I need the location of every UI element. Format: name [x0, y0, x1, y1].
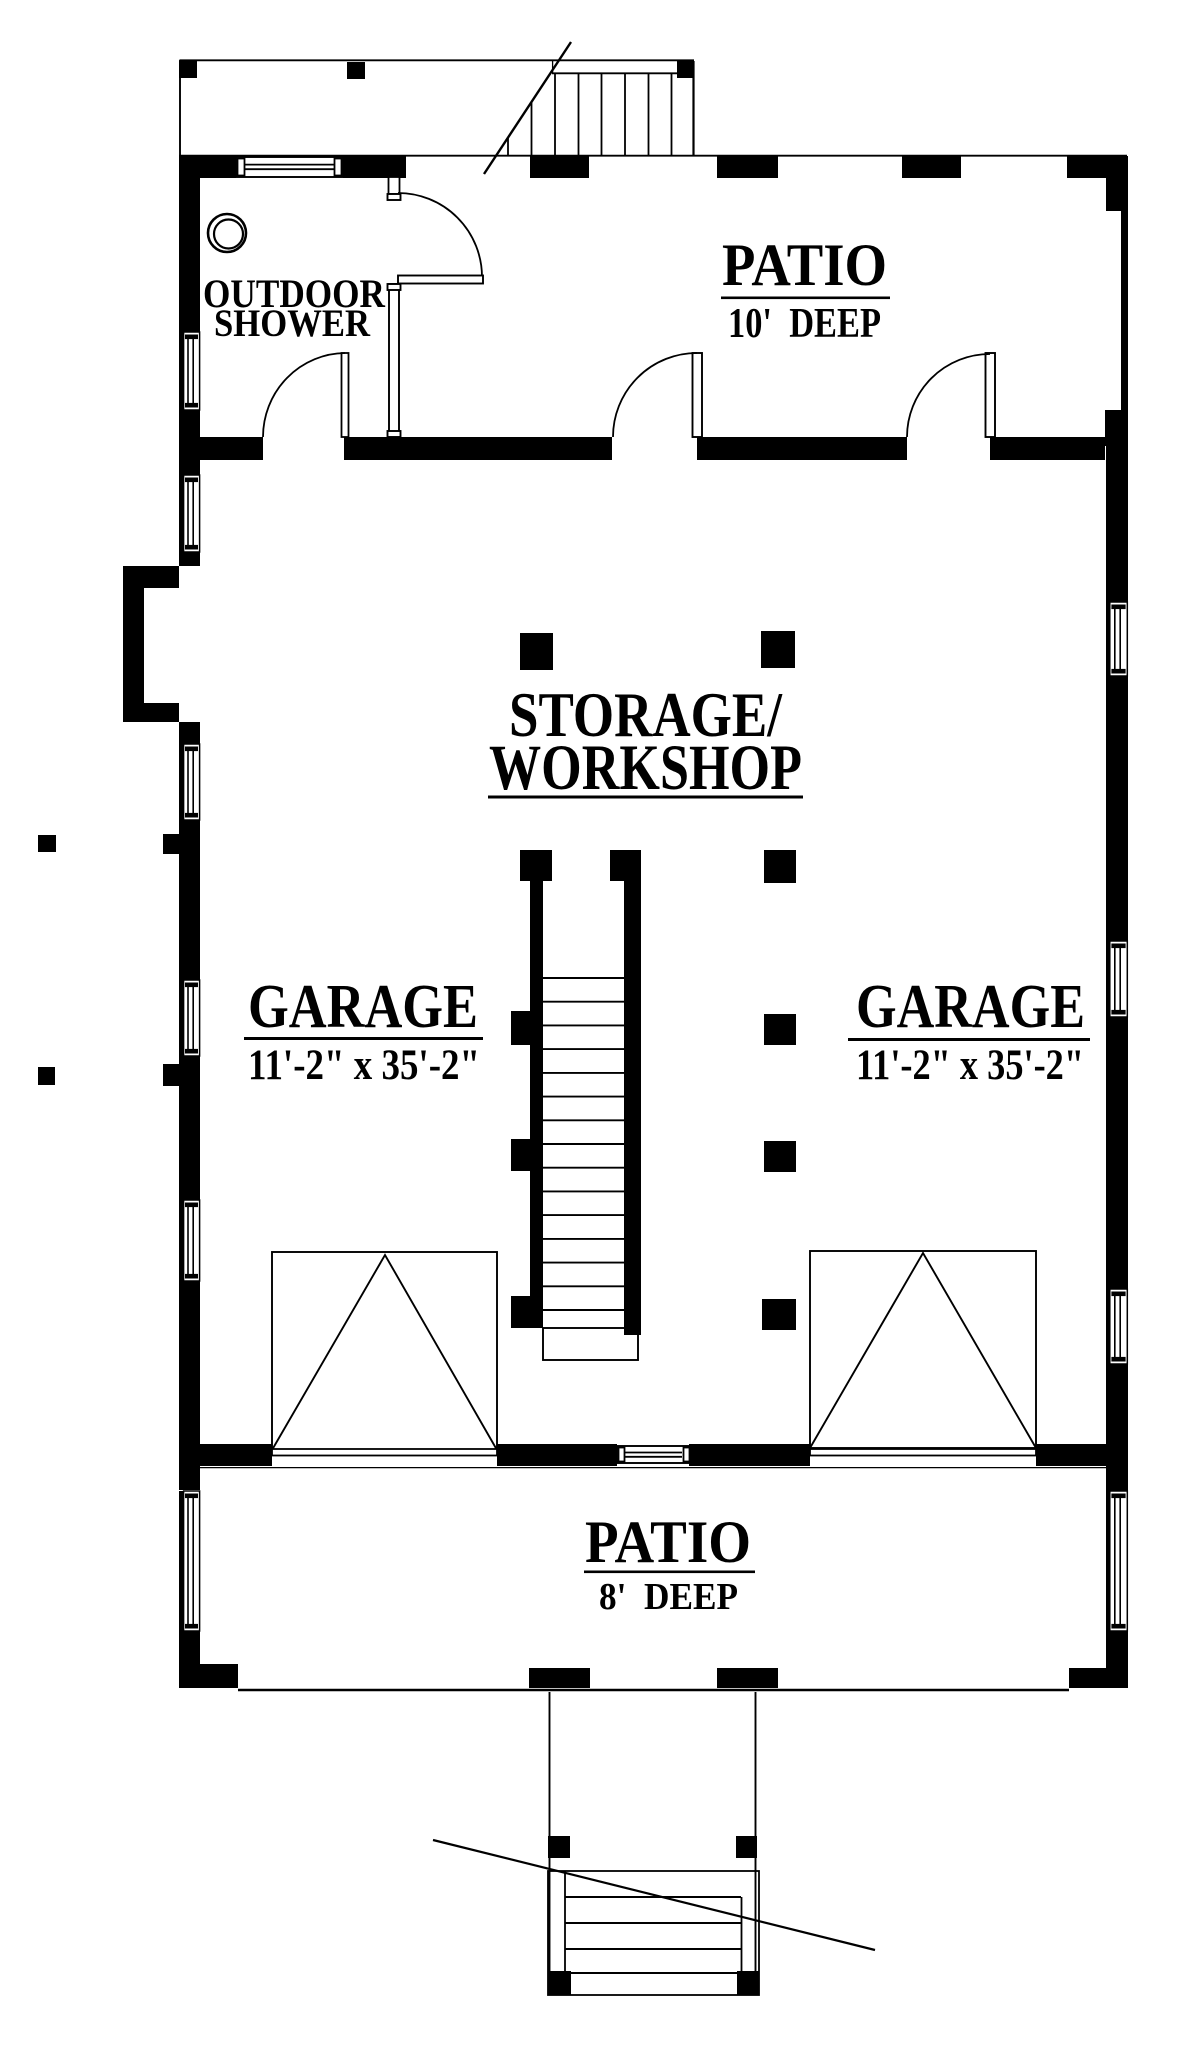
svg-text:GARAGE: GARAGE	[856, 973, 1085, 1041]
svg-text:PATIO: PATIO	[585, 1509, 751, 1575]
svg-text:10' DEEP: 10' DEEP	[728, 301, 881, 347]
svg-text:11'-2" x 35'-2": 11'-2" x 35'-2"	[248, 1042, 480, 1089]
svg-text:WORKSHOP: WORKSHOP	[489, 732, 802, 804]
svg-text:PATIO: PATIO	[722, 232, 887, 298]
svg-text:SHOWER: SHOWER	[214, 302, 371, 345]
svg-text:11'-2" x 35'-2": 11'-2" x 35'-2"	[856, 1042, 1084, 1089]
svg-text:8' DEEP: 8' DEEP	[599, 1576, 738, 1618]
svg-text:GARAGE: GARAGE	[248, 973, 478, 1041]
